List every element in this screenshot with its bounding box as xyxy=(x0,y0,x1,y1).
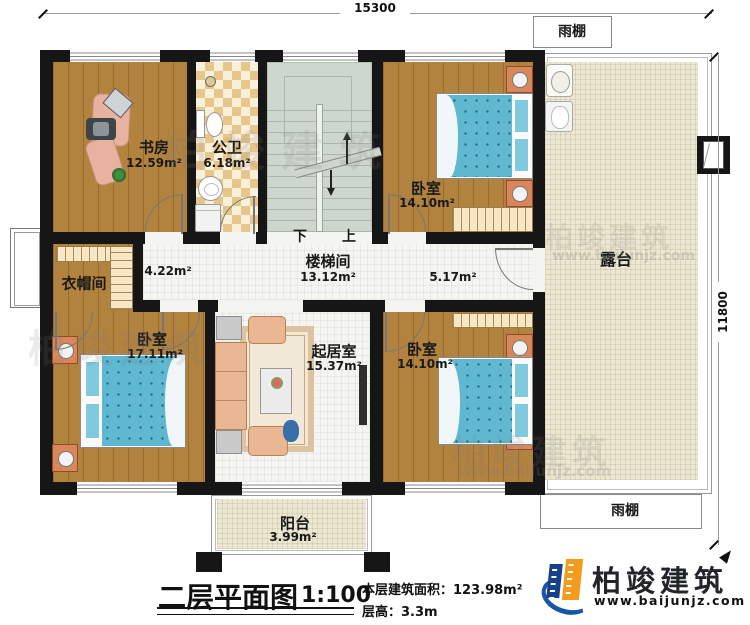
armchair xyxy=(248,426,288,456)
bedroom-br-area: 14.10m² xyxy=(397,358,453,370)
living-label: 起居室 xyxy=(311,345,356,360)
window-study xyxy=(70,50,160,62)
terrace-washing-machine xyxy=(545,101,573,132)
side-table xyxy=(216,430,242,454)
watermark-url: www.baijunjz.com xyxy=(458,462,611,480)
door-leaf-bedroom-tr xyxy=(388,194,390,234)
cloakroom-label: 衣帽间 xyxy=(61,277,106,292)
door-leaf-bedroom-br xyxy=(385,312,387,352)
door-leaf-bath xyxy=(253,196,255,234)
dimension-tick xyxy=(709,540,719,550)
floor-area-text: 本层建筑面积：123.98m² xyxy=(362,579,522,598)
door-opening-bedroom-tr xyxy=(388,232,426,244)
side-table xyxy=(216,316,242,340)
hall-right-area: 5.17m² xyxy=(429,271,476,283)
dimension-top-value: 15300 xyxy=(340,1,410,15)
window-stairwell xyxy=(283,50,358,62)
window-bedroom-br xyxy=(405,482,505,495)
door-opening-terrace xyxy=(533,248,545,292)
nightstand xyxy=(506,180,533,207)
closet-bedroom-br xyxy=(452,313,533,328)
stair-hall-opening xyxy=(267,232,372,244)
floor-height-text: 层高：3.3m xyxy=(362,601,438,620)
balcony-sliding-door xyxy=(242,482,342,495)
balcony-area: 3.99m² xyxy=(269,531,316,543)
watermark-url: www.baijunjz.com xyxy=(552,248,695,264)
nightstand xyxy=(506,66,533,93)
dimension-tick xyxy=(704,9,714,19)
sink-icon xyxy=(198,176,223,201)
hall-left-area: 4.22m² xyxy=(144,265,191,277)
coffee-table xyxy=(260,368,292,414)
living-area: 15.37m² xyxy=(306,360,362,372)
person-figure xyxy=(283,420,299,442)
stair-arrow-down-head xyxy=(327,188,335,196)
watermark-brand: 柏竣建筑 xyxy=(165,118,397,179)
door-opening-bedroom-bl xyxy=(160,300,198,312)
wardrobe-right xyxy=(110,246,133,310)
title-underline xyxy=(157,607,354,615)
bedroom-br-label: 卧室 xyxy=(407,343,437,358)
wardrobe-top xyxy=(56,246,114,262)
washing-machine-icon xyxy=(195,204,221,232)
bed-top-right xyxy=(436,93,533,179)
brand-logo-icon xyxy=(541,556,589,610)
tv-icon xyxy=(359,365,367,425)
stair-down-label: 下 xyxy=(293,230,307,244)
balcony-column xyxy=(196,552,222,572)
stairwell-label: 楼梯间 xyxy=(305,255,350,270)
window-bath xyxy=(210,50,255,62)
watermark-brand: 柏竣建筑 xyxy=(28,318,212,373)
floor-plan: 15300 11800 雨棚 露台 xyxy=(0,0,750,625)
dimension-right-value: 11800 xyxy=(716,282,730,342)
terrace-sink xyxy=(546,64,573,97)
stair-up-label: 上 xyxy=(342,230,356,244)
nightstand xyxy=(52,444,78,472)
desk-chair xyxy=(86,118,116,140)
stairwell-area: 13.12m² xyxy=(300,271,356,283)
living-room-opening xyxy=(218,300,303,312)
door-opening-bedroom-br xyxy=(385,300,425,312)
brand-url: www.baijunjz.com xyxy=(594,593,746,608)
canopy-top-label: 雨棚 xyxy=(558,25,586,39)
closet-bedroom-tr xyxy=(452,207,533,232)
balcony-column xyxy=(364,552,390,572)
door-leaf-study xyxy=(181,194,183,234)
window-bedroom-bl xyxy=(77,482,177,495)
door-leaf-terrace xyxy=(495,248,533,250)
scale-value: 1:100 xyxy=(301,583,371,608)
bedroom-tr-label: 卧室 xyxy=(411,182,441,197)
door-opening-study xyxy=(145,232,183,244)
plant-icon xyxy=(112,168,126,182)
bedroom-tr-area: 14.10m² xyxy=(399,197,455,209)
dimension-tick xyxy=(38,9,48,19)
shower-head xyxy=(205,76,216,87)
door-opening-bath xyxy=(220,232,256,244)
canopy-bottom-label: 雨棚 xyxy=(611,504,639,518)
window-bedroom-tr xyxy=(405,50,505,62)
bay-window xyxy=(10,228,42,308)
armchair xyxy=(248,316,286,344)
sofa xyxy=(215,342,247,430)
